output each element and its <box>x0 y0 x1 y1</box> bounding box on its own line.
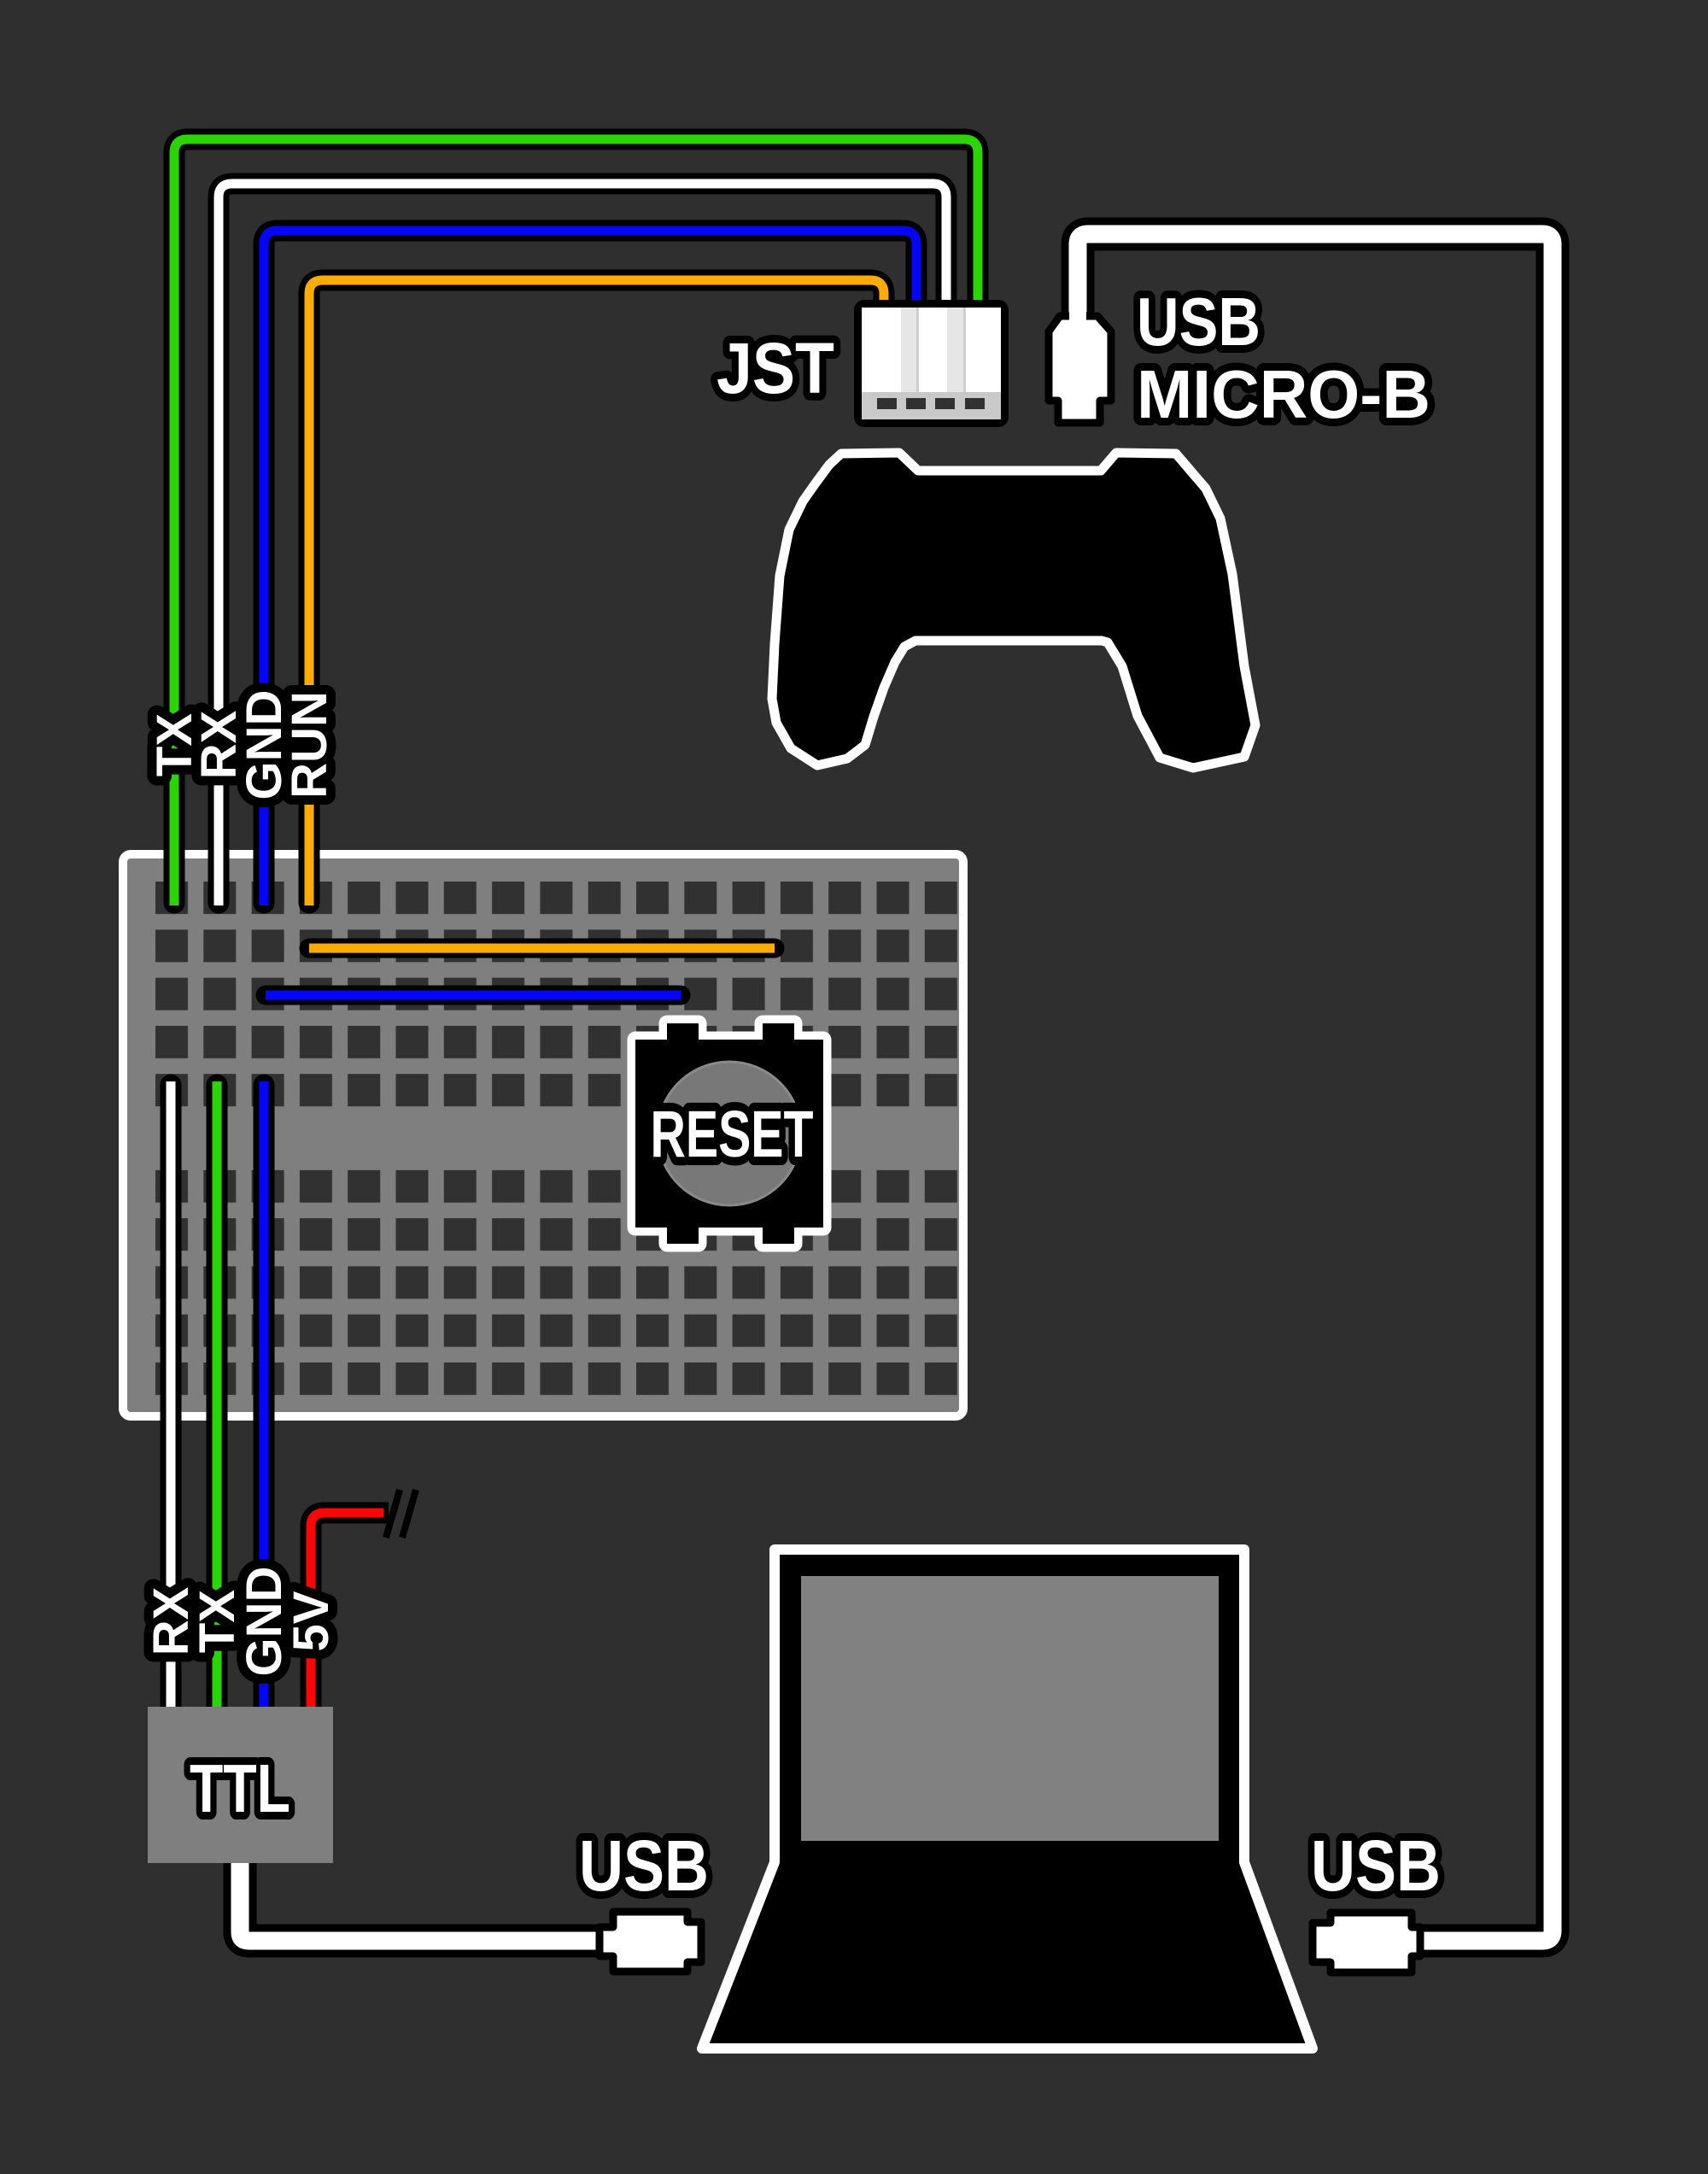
svg-text:RESET: RESET <box>651 1098 814 1171</box>
svg-text:USB: USB <box>1137 284 1261 360</box>
svg-text:JST: JST <box>717 328 834 408</box>
svg-text:MICRO-B: MICRO-B <box>1137 356 1430 432</box>
svg-text:USB: USB <box>579 1825 709 1906</box>
svg-text:TTL: TTL <box>190 1750 290 1826</box>
svg-text:USB: USB <box>1311 1825 1441 1906</box>
svg-text:5V: 5V <box>284 1591 339 1651</box>
svg-text:RUN: RUN <box>282 691 337 799</box>
